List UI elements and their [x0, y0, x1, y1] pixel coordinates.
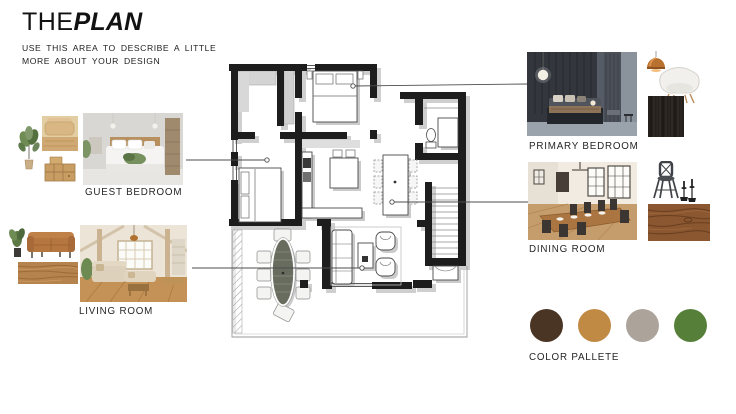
- plant-cutout-image: [18, 125, 40, 171]
- candlesticks-image: [677, 179, 699, 203]
- sofa-cutout-image: [8, 226, 78, 264]
- guest-bedroom-label: GUEST BEDROOM: [85, 187, 182, 198]
- page-subtitle-line2: MORE ABOUT YOUR DESIGN: [22, 55, 216, 68]
- page-title-plan: PLAN: [74, 8, 143, 36]
- bedding-swatch-image: [42, 116, 78, 151]
- primary-bedroom-label: PRIMARY BEDROOM: [529, 141, 639, 152]
- guest-bedroom-photo: [83, 113, 183, 185]
- walnut-texture-image: [648, 204, 710, 241]
- living-room-label: LIVING ROOM: [79, 306, 153, 317]
- page-subtitle: USE THIS AREA TO DESCRIBE A LITTLE MORE …: [22, 42, 216, 67]
- living-room-photo: [80, 225, 187, 302]
- page-subtitle-line1: USE THIS AREA TO DESCRIBE A LITTLE: [22, 42, 216, 55]
- dining-room-photo: [528, 162, 637, 240]
- palette-swatch-4: [674, 309, 707, 342]
- wood-texture-light-image: [18, 262, 78, 284]
- dining-room-label: DINING ROOM: [529, 244, 605, 255]
- page-title-the: THE: [22, 8, 74, 36]
- primary-bedroom-photo: [527, 52, 637, 136]
- floor-plan: [222, 48, 494, 348]
- palette-swatch-3: [626, 309, 659, 342]
- design-board: THEPLAN USE THIS AREA TO DESCRIBE A LITT…: [0, 0, 736, 414]
- color-palette-label: COLOR PALLETE: [529, 352, 619, 363]
- dark-wood-texture-image: [648, 96, 684, 137]
- wood-organizer-image: [42, 152, 78, 185]
- palette-swatch-1: [530, 309, 563, 342]
- page-title: THEPLAN: [22, 8, 142, 37]
- palette-swatch-2: [578, 309, 611, 342]
